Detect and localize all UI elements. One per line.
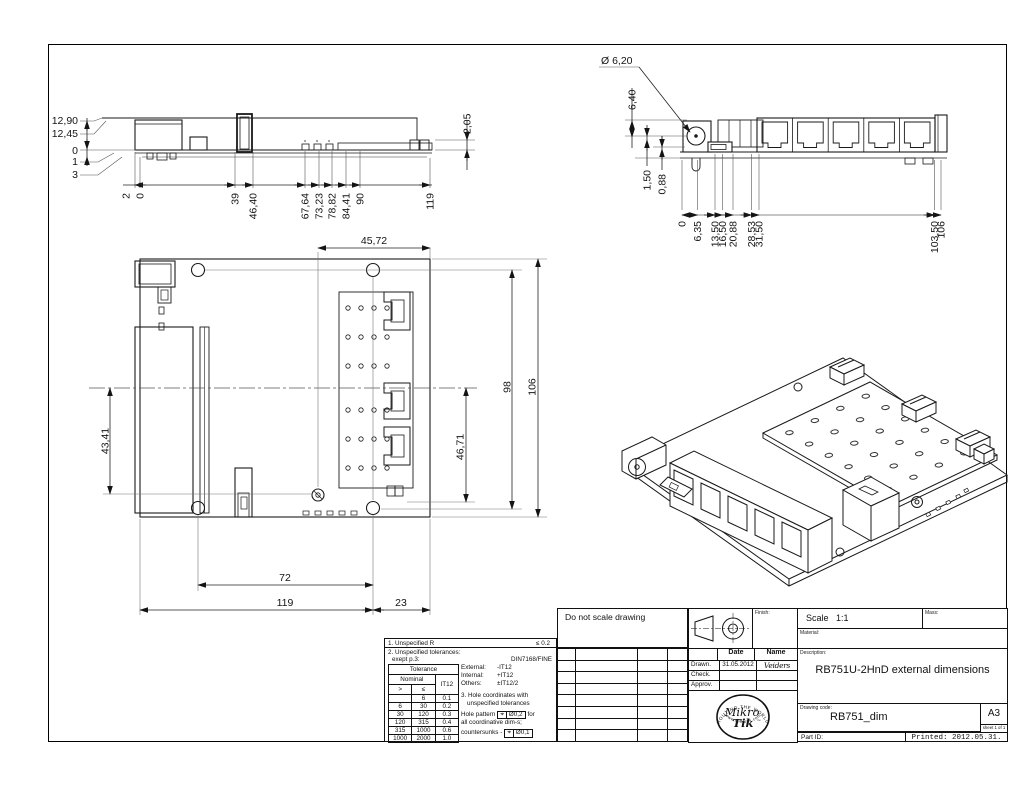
mikrotik-logo: ROUTING THE WORLD Mikro Tik ™ www.mikrot… [691, 692, 795, 742]
dim-label: 0,88 [657, 174, 669, 195]
rule-value: ≤ 0.2 [536, 640, 550, 646]
dim-label: 31,50 [754, 221, 766, 247]
dim-label: 46,71 [455, 434, 467, 460]
dim-label: 119 [277, 597, 294, 609]
scale-value: 1:1 [836, 613, 849, 623]
hole-pattern-tolerance-frame: ⌖Ø0,2 [497, 711, 525, 719]
front-view-drawing: Ø 6,20 6,40 1,50 0,88 0 6,35 13,50 16,50… [595, 48, 1000, 263]
material-cell: Material: [797, 628, 1008, 649]
tolerance-side-notes: External:-IT12 Internal:+IT12 Others:±IT… [461, 664, 556, 738]
dim-label: 2 [121, 193, 133, 199]
drawn-label: Drawn. [689, 661, 719, 670]
drawing-sheet: 12,90 12,45 0 1 3 2 0 39 46,40 67,64 73,… [0, 0, 1024, 791]
logo-cell: ROUTING THE WORLD Mikro Tik ™ www.mikrot… [688, 690, 798, 743]
scale-cell: Scale 1:1 [797, 608, 923, 629]
dim-label: 106 [936, 221, 948, 239]
projection-symbol-cell [688, 608, 753, 649]
mass-cell: Mass: [922, 608, 1008, 629]
plan-view-drawing: 45,72 98 106 43,41 46,71 72 119 23 [85, 235, 560, 625]
dim-label: 12,90 [52, 115, 78, 127]
drawing-code: RB751_dim [798, 711, 980, 723]
dim-label: 67,64 [300, 193, 312, 219]
shield-clips [384, 292, 410, 465]
dim-label: 2,05 [462, 113, 474, 134]
front-geometry [680, 115, 947, 171]
drawn-date: 31.05.2012 [719, 661, 756, 670]
tolerance-notes-box: 1. Unspecified R ≤ 0.2 2. Unspecified to… [384, 638, 557, 742]
dim-label: 43,41 [100, 428, 112, 454]
side-profile-geometry [102, 114, 432, 160]
plan-dimension-lines [110, 248, 538, 610]
dim-label: 23 [395, 597, 407, 609]
signature-table: Date Name Drawn. 31.05.2012 Veiders Chec… [688, 648, 798, 691]
do-not-scale-note: Do not scale drawing [557, 608, 688, 648]
drawn-signature: Veiders [756, 661, 797, 670]
printed-date-cell: Printed: 2012.05.31. [905, 732, 1008, 742]
dim-label: 12,45 [52, 128, 78, 140]
unspecified-tolerances-rule: 2. Unspecified tolerances:exept p.3: DIN… [385, 648, 556, 663]
dim-label: 39 [230, 193, 242, 205]
name-header: Name [754, 649, 797, 660]
drawing-code-label: Drawing code: [798, 704, 980, 711]
dim-label: 20,88 [728, 221, 740, 247]
countersunk-tolerance-frame: ⌖Ø0,1 [504, 729, 532, 737]
revision-table [557, 648, 688, 742]
dim-label: 3 [72, 169, 78, 181]
dim-label: 1 [72, 156, 78, 168]
dim-label: 1,50 [642, 170, 654, 191]
dim-label: 6,35 [692, 221, 704, 242]
tolerance-table: Tolerance NominalIT12 >≤ 60.1 6300.2 301… [388, 664, 459, 743]
unspecified-r-rule: 1. Unspecified R ≤ 0.2 [385, 639, 556, 648]
part-id-cell: Part ID: [797, 732, 906, 742]
dim-label: 90 [355, 193, 367, 205]
description-label: Description: [798, 649, 1007, 656]
dim-label: 84,41 [341, 193, 353, 219]
dim-label: 46,40 [248, 193, 260, 219]
dim-label: 0 [135, 193, 147, 199]
side-view-drawing: 12,90 12,45 0 1 3 2 0 39 46,40 67,64 73,… [40, 90, 480, 240]
dim-label: 6,40 [627, 89, 639, 110]
scale-label: Scale [806, 613, 829, 623]
drawing-code-cell: Drawing code: RB751_dim [797, 703, 981, 732]
dim-label: 45,72 [361, 235, 387, 247]
revision-area: Do not scale drawing [557, 608, 688, 742]
side-dimension-lines [87, 118, 467, 187]
date-header: Date [717, 649, 754, 660]
isometric-view [608, 345, 1008, 597]
plan-dimension-labels: 45,72 98 106 43,41 46,71 72 119 23 [100, 235, 539, 609]
dim-label: 98 [502, 381, 514, 393]
dim-label: 119 [425, 193, 437, 210]
description-cell: Description: RB751U-2HnD external dimens… [797, 648, 1008, 704]
dim-label: 106 [527, 378, 539, 396]
rule-text: 1. Unspecified R [388, 640, 434, 646]
finish-cell: Finish: [752, 608, 798, 649]
check-label: Check. [689, 671, 719, 680]
rule-text: 2. Unspecified tolerances:exept p.3: [388, 649, 460, 663]
rule-value: DIN7168/FINE [511, 656, 552, 663]
dim-label: 72 [279, 572, 291, 584]
drawing-description: RB751U-2HnD external dimensions [798, 664, 1007, 676]
dim-label: 0 [677, 221, 689, 227]
dim-label: 78,82 [327, 193, 339, 219]
dim-label: 73,23 [314, 193, 326, 219]
third-angle-projection-icon [689, 609, 752, 648]
side-dimension-labels: 12,90 12,45 0 1 3 2 0 39 46,40 67,64 73,… [52, 113, 474, 219]
diameter-label: Ø 6,20 [601, 55, 633, 67]
paper-size-cell: A3 [980, 703, 1008, 725]
